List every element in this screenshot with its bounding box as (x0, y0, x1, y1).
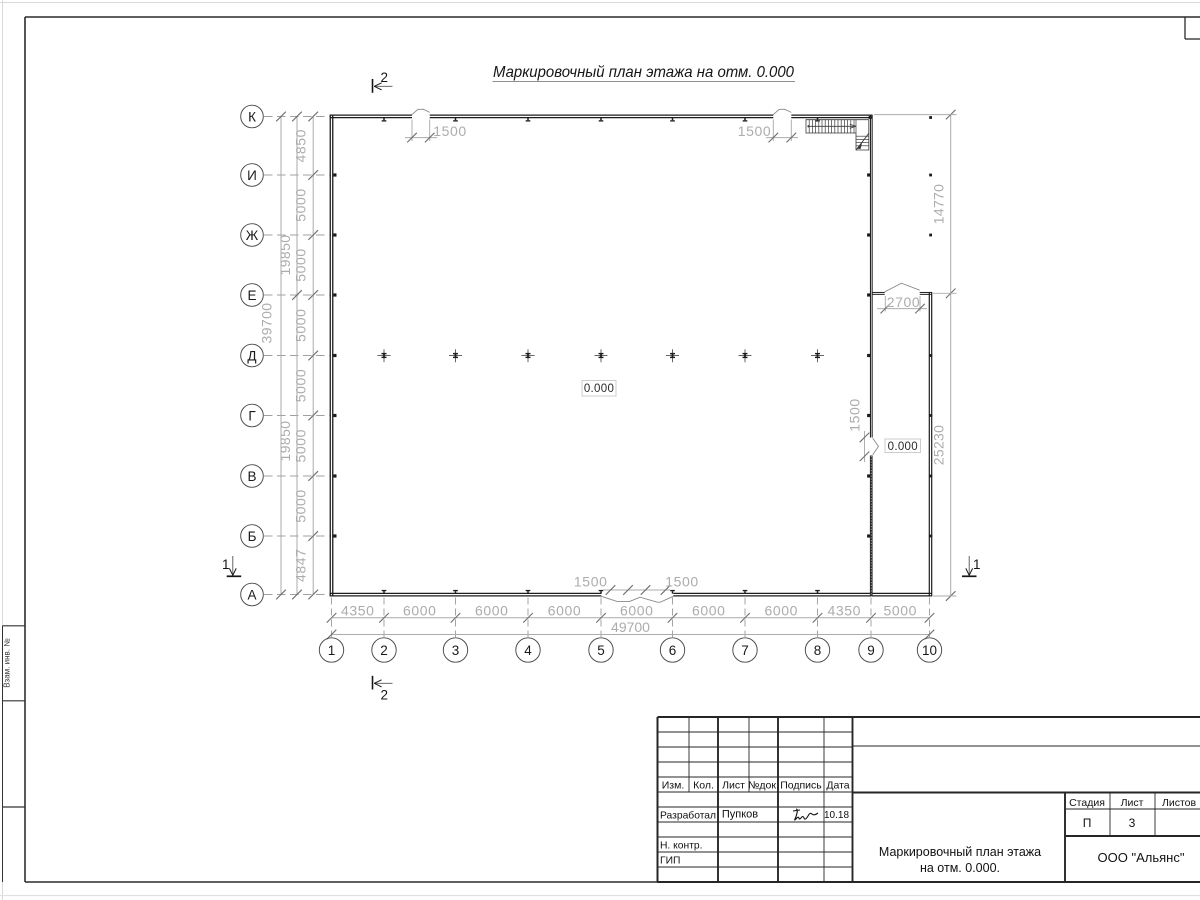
svg-text:19850: 19850 (277, 421, 293, 462)
svg-text:8: 8 (814, 643, 822, 658)
svg-text:Дата: Дата (826, 780, 849, 792)
svg-text:1500: 1500 (665, 573, 699, 589)
svg-text:1: 1 (222, 557, 230, 572)
svg-text:6000: 6000 (403, 602, 437, 618)
svg-text:К: К (248, 109, 256, 124)
svg-text:1: 1 (328, 643, 336, 658)
svg-text:4350: 4350 (341, 602, 375, 618)
svg-text:10: 10 (922, 643, 937, 658)
svg-text:0.000: 0.000 (584, 383, 614, 395)
svg-text:2: 2 (380, 643, 388, 658)
svg-text:Подпись: Подпись (780, 780, 822, 792)
svg-text:Ж: Ж (246, 228, 259, 243)
svg-text:39700: 39700 (259, 303, 275, 344)
svg-text:ГИП: ГИП (660, 856, 680, 867)
svg-text:1500: 1500 (433, 123, 467, 139)
svg-text:4: 4 (524, 643, 532, 658)
svg-text:4350: 4350 (827, 602, 861, 618)
svg-text:Д: Д (247, 348, 256, 363)
svg-text:6: 6 (669, 643, 677, 658)
svg-text:Лист: Лист (722, 780, 745, 792)
svg-text:49700: 49700 (611, 619, 650, 635)
svg-text:Изм.: Изм. (662, 780, 685, 792)
svg-text:5000: 5000 (883, 602, 917, 618)
svg-text:1500: 1500 (574, 573, 608, 589)
svg-text:П: П (1083, 816, 1092, 830)
svg-text:Е: Е (247, 288, 256, 303)
svg-text:5000: 5000 (293, 369, 309, 403)
svg-text:4847: 4847 (293, 548, 309, 582)
svg-text:Лист: Лист (1121, 797, 1144, 809)
svg-text:Маркировочный план этажа на от: Маркировочный план этажа на отм. 0.000 (493, 64, 794, 81)
svg-text:Н. контр.: Н. контр. (660, 841, 703, 852)
svg-text:2: 2 (381, 688, 389, 703)
svg-text:2700: 2700 (887, 294, 921, 310)
svg-text:6000: 6000 (692, 602, 726, 618)
svg-text:25230: 25230 (931, 425, 947, 465)
svg-text:№док.: №док. (748, 780, 779, 792)
svg-text:4850: 4850 (293, 129, 309, 163)
svg-text:на отм. 0.000.: на отм. 0.000. (920, 861, 1000, 875)
svg-text:3: 3 (452, 643, 460, 658)
svg-text:6000: 6000 (620, 602, 654, 618)
svg-text:6000: 6000 (475, 602, 509, 618)
svg-text:Пупков: Пупков (722, 809, 758, 821)
svg-text:6000: 6000 (764, 602, 798, 618)
svg-text:И: И (247, 168, 257, 183)
svg-text:7: 7 (741, 643, 749, 658)
svg-text:0.000: 0.000 (888, 441, 918, 453)
svg-text:5000: 5000 (293, 248, 309, 282)
svg-text:5000: 5000 (293, 308, 309, 342)
svg-text:1500: 1500 (847, 398, 863, 432)
svg-text:Кол.: Кол. (693, 780, 714, 792)
svg-text:5000: 5000 (293, 188, 309, 222)
svg-text:Взам. инв. №: Взам. инв. № (3, 638, 12, 688)
svg-text:10.18: 10.18 (824, 810, 849, 821)
svg-text:5: 5 (597, 643, 605, 658)
svg-text:ООО "Альянс": ООО "Альянс" (1098, 850, 1185, 865)
svg-text:9: 9 (867, 643, 875, 658)
svg-text:Стадия: Стадия (1069, 797, 1105, 809)
svg-text:19850: 19850 (277, 235, 293, 276)
svg-text:14770: 14770 (931, 184, 947, 224)
svg-text:Маркировочный план этажа: Маркировочный план этажа (879, 845, 1041, 859)
svg-text:1500: 1500 (738, 123, 772, 139)
svg-text:А: А (247, 587, 256, 602)
svg-text:6000: 6000 (548, 602, 582, 618)
svg-text:Г: Г (248, 408, 256, 423)
svg-text:Б: Б (248, 529, 257, 544)
svg-text:2: 2 (381, 70, 389, 85)
svg-text:Листов: Листов (1162, 797, 1197, 809)
svg-text:3: 3 (1129, 816, 1136, 830)
svg-text:5000: 5000 (293, 429, 309, 463)
svg-text:В: В (247, 469, 256, 484)
svg-text:5000: 5000 (293, 489, 309, 523)
svg-text:1: 1 (973, 557, 981, 572)
svg-text:Разработал: Разработал (660, 809, 716, 821)
